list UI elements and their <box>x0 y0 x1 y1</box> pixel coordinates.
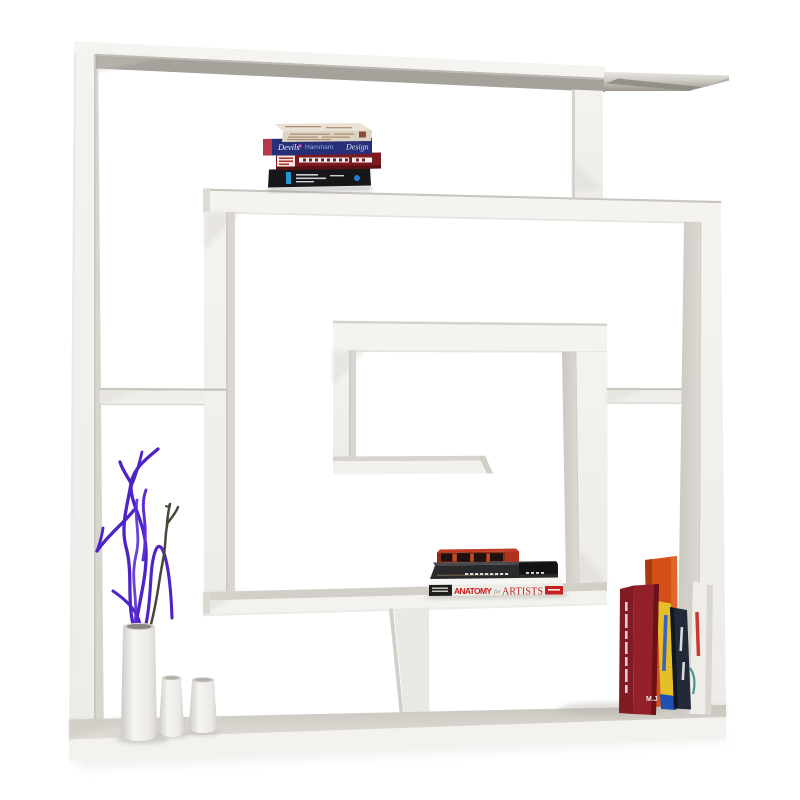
svg-text:Design: Design <box>345 143 369 152</box>
svg-text:Devils: Devils <box>277 142 300 152</box>
svg-text:ANATOMY: ANATOMY <box>454 586 492 596</box>
svg-text:M.J: M.J <box>646 696 658 703</box>
svg-text:for: for <box>494 589 502 596</box>
svg-text:ARTISTS: ARTISTS <box>502 587 543 598</box>
svg-text:Hammam: Hammam <box>305 144 333 151</box>
